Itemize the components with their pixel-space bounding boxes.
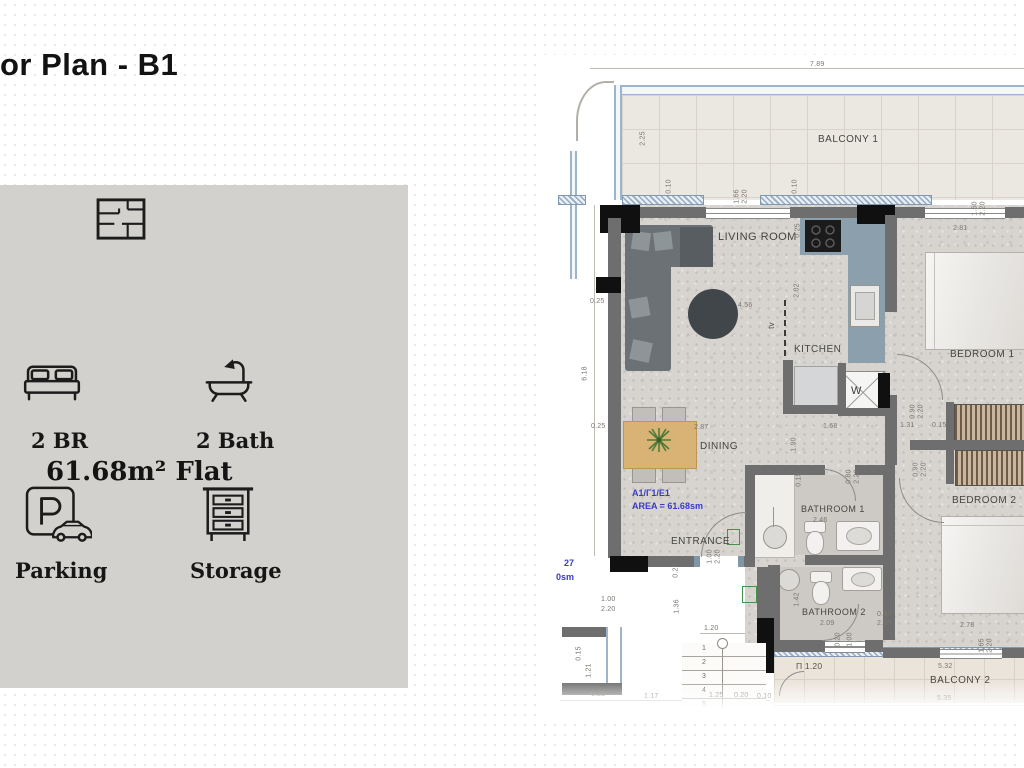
shower-head [763,525,787,549]
utility-box [742,586,757,603]
dim-label: 1.21 [586,663,593,677]
dim-label: 1.50 [972,201,979,215]
dim-label: 2.20 [854,469,861,483]
balcony-1-floor [622,95,1024,200]
shower-pipe [773,507,774,527]
unit-code: A1/Γ1/E1 [632,488,670,498]
bed-fold [942,525,1024,526]
dimension-line [594,205,595,556]
wall [783,360,793,410]
dim-label: 2.20 [987,638,994,652]
room-label-entrance: ENTRANCE [671,536,730,547]
wall [790,207,857,218]
dim-label: 1.00 [707,549,714,563]
dim-label: 0.10 [666,179,673,193]
bedrooms-label: 2 BR [31,428,88,453]
bathrooms-label: 2 Bath [196,428,274,453]
wall [640,207,706,218]
dim-label: 1.65 [979,638,986,652]
dim-label: 2.20 [742,189,749,203]
plant-icon [644,427,674,458]
wardrobe [955,450,1024,486]
room-label-balcony-1: BALCONY 1 [818,134,878,145]
wall [745,465,755,561]
window [925,208,1005,219]
dining-chair [662,467,686,483]
balcony-1-sill [760,195,932,205]
balcony-railing [614,85,622,200]
dim-label: 1.00 [847,632,854,646]
toilet [812,581,830,605]
wall [883,648,940,658]
slide: { "slide": { "title": "or Plan - B1" }, … [0,0,1024,768]
wall [608,218,621,558]
area-title: 61.68m² Flat [46,457,233,487]
dim-label: 0.90 [913,462,920,476]
bed-1 [925,252,1024,350]
dim-label: 0.25 [590,298,604,305]
stairs-start-circle [717,638,728,649]
sofa-pillow [653,231,673,251]
wall [838,408,890,416]
round-rug [688,289,738,339]
dim-label: 2.25 [640,131,647,145]
tv-line [784,300,786,366]
page-title: or Plan - B1 [0,47,178,83]
wall-column [610,556,648,572]
stair-step-number: 2 [702,659,706,666]
wall [773,640,825,652]
dim-label: 0.20 [835,632,842,646]
dim-label: 1.20 [704,625,718,632]
dim-label: 1.00 [601,596,615,603]
wall [865,640,883,652]
wall [745,465,825,475]
storage-icon [200,484,256,544]
wall [757,567,769,618]
room-label-kitchen: KITCHEN [794,344,841,355]
dim-label: 0.80 [846,469,853,483]
dim-label: 6.18 [582,366,589,380]
dim-label: 2.78 [960,622,974,629]
floor-plan: W tv [570,55,1024,715]
sink-bowl [846,527,872,545]
neighbor-balcony-rail [570,151,577,279]
neighbor-window-sill [558,195,586,205]
bottom-fade [542,681,1024,717]
storage-label: Storage [190,558,282,583]
stair-step-number: 1 [702,645,706,652]
toilet [806,531,824,555]
dim-label: 7.89 [810,61,824,68]
sofa-chaise [680,227,713,267]
dim-label: 0.25 [673,563,680,577]
bathroom-sink [842,567,882,591]
kitchen-sink [850,285,880,327]
unit-area: AREA = 61.68sm [632,501,703,511]
bathroom-sink [836,521,880,551]
dim-label: 2.02 [794,283,801,297]
dim-label: 2.87 [694,424,708,431]
dim-label: 2.09 [820,620,834,627]
room-label-bathroom-1: BATHROOM 1 [801,504,865,514]
dim-label: 1.31 [900,422,914,429]
neighbor-label-partial: 0sm [556,572,574,582]
sink-bowl [851,572,875,587]
dim-label: 0.15 [576,646,583,660]
sofa-pillow [629,339,653,363]
dim-label: 0.10 [792,179,799,193]
window [606,627,622,689]
balcony-1-sill [622,195,704,205]
room-label-dining: DINING [700,441,738,452]
balcony-door-label: Π 1.20 [796,661,822,671]
wall [838,363,846,411]
wall-column [878,373,890,413]
room-label-bedroom-1: BEDROOM 1 [950,349,1015,360]
wall [783,405,840,414]
dimension-line [590,68,1024,69]
dim-label: 0.90 [910,404,917,418]
room-label-bedroom-2: BEDROOM 2 [952,495,1017,506]
wall [1002,648,1024,658]
parking-label: Parking [15,558,107,583]
dim-label: 0.15 [796,472,803,486]
sink-basin [855,292,875,320]
dim-label: 0.60 [877,611,891,618]
parking-icon [24,485,92,545]
tv-label: tv [767,322,776,329]
bed-fold [934,253,935,349]
bed-icon [20,360,84,406]
dining-chair [632,467,656,483]
room-label-bathroom-2: BATHROOM 2 [802,607,866,617]
wall [895,207,925,218]
dim-label: 2.20 [601,606,615,613]
dim-label: 2.20 [918,404,925,418]
dim-label: 2.20 [921,462,928,476]
dim-label: 0.25 [795,223,802,237]
wall-column [596,277,621,293]
stair-step-number: 3 [702,673,706,680]
dim-label: 1.68 [823,423,837,430]
washing-machine-label: W [851,385,862,397]
wall [885,215,897,312]
cooktop [805,220,841,252]
dim-label: 0.25 [591,423,605,430]
dim-label: 2.20 [877,620,891,627]
dim-label: 1.42 [794,592,801,606]
shower-head [778,569,800,591]
room-label-living-room: LIVING ROOM [718,231,797,243]
window [825,641,865,653]
bath-icon [203,357,255,404]
fridge [794,366,838,406]
sofa-pillow [631,231,651,251]
dim-label: 1.90 [791,437,798,451]
sofa-pillow [628,296,650,318]
dim-label: 2.46 [813,517,827,524]
wardrobe [954,404,1024,442]
dim-label: 1.36 [674,599,681,613]
wall [805,555,883,565]
dim-label: 1.66 [734,189,741,203]
neighbor-label-partial: 27 [564,558,574,568]
dim-label: 0.15 [932,422,946,429]
door-jamb [694,556,700,567]
dim-label: 2.20 [980,201,987,215]
dim-label: 2.20 [715,549,722,563]
bed-2 [941,516,1024,614]
wall [1005,207,1024,218]
window [706,208,790,219]
dim-label: 5.32 [938,663,952,670]
dim-label: 4.56 [738,302,752,309]
wall [910,440,1024,450]
info-panel: 61.68m² Flat 2 BR 2 Bath [0,185,408,688]
dim-label: 2.81 [953,225,967,232]
floorplan-icon [95,197,147,241]
